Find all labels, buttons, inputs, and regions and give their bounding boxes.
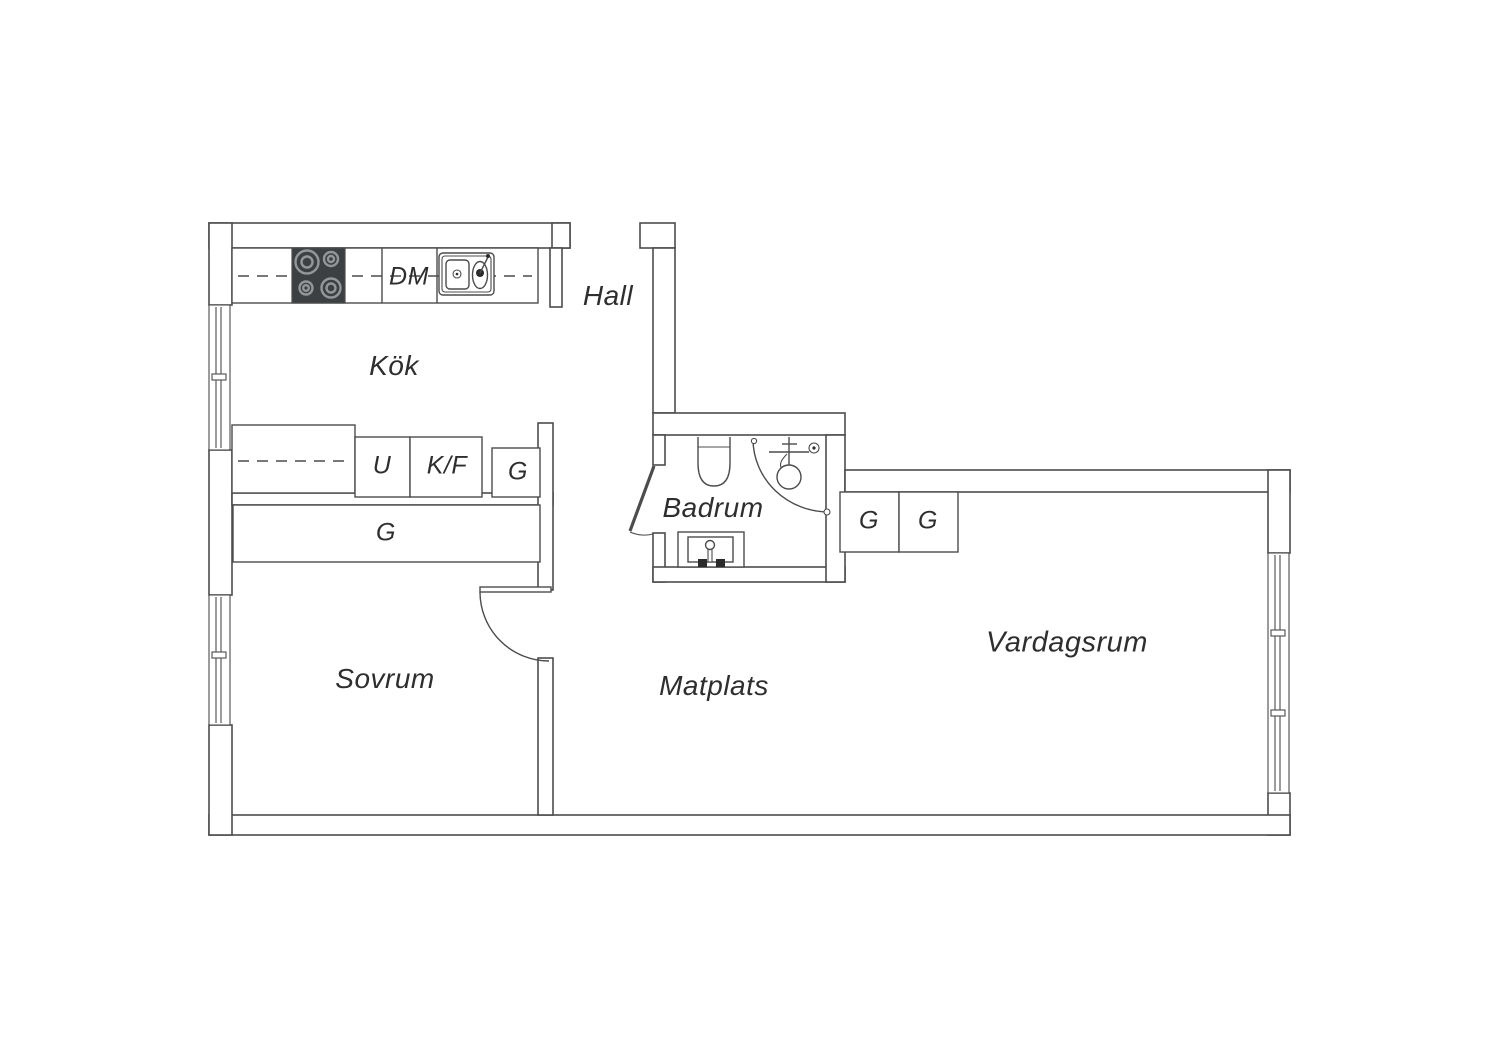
fixture-label-fridge-freezer: K/F — [427, 452, 467, 481]
stove-icon — [292, 248, 345, 303]
window-icon-kitchen — [209, 305, 230, 450]
door-swing-icon-bathroom — [630, 466, 654, 535]
fixture-label-wardrobe-hall-2: G — [918, 507, 938, 536]
fixture-label-dishwasher: DM — [389, 263, 429, 292]
window-icon-bedroom — [209, 595, 230, 725]
fixture-label-wardrobe-bedroom: G — [376, 519, 396, 548]
door-swing-icon-bedroom — [480, 587, 551, 661]
room-label-bedroom: Sovrum — [335, 663, 434, 695]
fixture-label-undercounter: U — [373, 452, 392, 481]
window-icon-living-room — [1268, 553, 1289, 793]
washbasin-icon — [678, 532, 744, 567]
fixture-label-wardrobe-kitchen: G — [508, 458, 528, 487]
kitchen-sink-icon — [439, 253, 494, 295]
wardrobe-hall-boxes — [840, 492, 958, 552]
fixture-label-wardrobe-hall-1: G — [859, 507, 879, 536]
room-label-dining: Matplats — [659, 670, 769, 702]
toilet-icon — [698, 437, 730, 486]
room-label-bathroom: Badrum — [662, 492, 763, 524]
room-label-hall: Hall — [583, 280, 633, 312]
room-label-kitchen: Kök — [369, 350, 419, 382]
room-label-living: Vardagsrum — [986, 627, 1148, 660]
floorplan-canvas — [0, 0, 1500, 1060]
floorplan-page: Hall Kök Badrum Sovrum Matplats Vardagsr… — [0, 0, 1500, 1060]
